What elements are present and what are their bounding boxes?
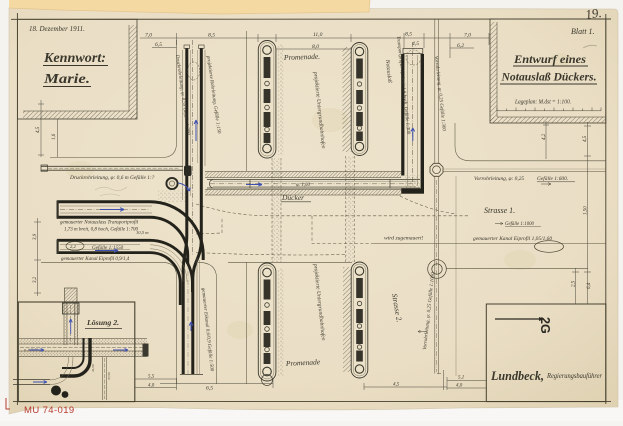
svg-text:2G: 2G bbox=[538, 317, 552, 334]
svg-text:19.: 19. bbox=[584, 5, 602, 22]
svg-text:1,6: 1,6 bbox=[52, 133, 57, 140]
svg-text:3,9: 3,9 bbox=[33, 233, 38, 240]
svg-text:Vorrohrleitung, φ: 0,25: Vorrohrleitung, φ: 0,25 bbox=[474, 176, 524, 182]
svg-text:2,5: 2,5 bbox=[572, 280, 577, 287]
svg-text:18. Dezember 1911.: 18. Dezember 1911. bbox=[29, 25, 85, 33]
svg-text:8,0: 8,0 bbox=[312, 44, 319, 50]
svg-text:Promenade: Promenade bbox=[285, 357, 321, 368]
svg-text:4,5: 4,5 bbox=[412, 41, 419, 47]
svg-text:Gefälle 1:1000: Gefälle 1:1000 bbox=[505, 222, 535, 227]
svg-text:Gefälle 1:1550: Gefälle 1:1550 bbox=[92, 244, 124, 251]
svg-text:Marie.: Marie. bbox=[43, 72, 90, 87]
svg-text:MU 74-019: MU 74-019 bbox=[24, 405, 75, 416]
svg-text:4,2: 4,2 bbox=[542, 133, 547, 140]
svg-text:7,0: 7,0 bbox=[145, 33, 152, 39]
svg-text:1,73 m breit, 0,8 hoch, Gefäll: 1,73 m breit, 0,8 hoch, Gefälle 1:700 bbox=[64, 228, 138, 233]
svg-text:6,4: 6,4 bbox=[587, 282, 592, 289]
svg-text:5,1: 5,1 bbox=[458, 376, 464, 381]
svg-text:φ: 1,00: φ: 1,00 bbox=[296, 183, 310, 188]
svg-text:Lösung 2.: Lösung 2. bbox=[86, 318, 119, 327]
svg-text:Regierungsbauführer: Regierungsbauführer bbox=[546, 372, 602, 380]
svg-text:4,5: 4,5 bbox=[583, 135, 588, 142]
svg-text:8,5: 8,5 bbox=[405, 32, 412, 38]
svg-text:Strasse 1.: Strasse 1. bbox=[484, 206, 515, 215]
svg-text:Druckrohrleitung, φ: 0,6 m Gef: Druckrohrleitung, φ: 0,6 m Gefälle 1:? bbox=[69, 174, 155, 181]
svg-text:gemauerter Kanal Eiprofil 1,05: gemauerter Kanal Eiprofil 1,05/1,60 bbox=[473, 235, 552, 242]
svg-text:5,5: 5,5 bbox=[148, 375, 155, 380]
svg-text:4,5: 4,5 bbox=[36, 126, 41, 133]
svg-text:6,5: 6,5 bbox=[206, 386, 213, 392]
svg-text:11,0: 11,0 bbox=[313, 32, 323, 38]
svg-text:Kennwort:: Kennwort: bbox=[43, 51, 106, 66]
svg-text:Entwurf eines: Entwurf eines bbox=[513, 54, 587, 66]
svg-text:gemauerter Notauslass Transpor: gemauerter Notauslass Transportprofil bbox=[60, 221, 139, 226]
svg-text:3,2: 3,2 bbox=[33, 276, 38, 283]
svg-text:4,0: 4,0 bbox=[148, 383, 155, 388]
svg-text:7,0: 7,0 bbox=[464, 33, 471, 39]
svg-text:Notauslaß Dückers.: Notauslaß Dückers. bbox=[500, 72, 596, 84]
svg-text:4,5: 4,5 bbox=[393, 383, 400, 388]
svg-text:Lundbeck,: Lundbeck, bbox=[490, 369, 544, 383]
svg-text:gemauerter Kanal Eiprofil 0,9/: gemauerter Kanal Eiprofil 0,9/1,4 bbox=[61, 257, 130, 262]
svg-text:wird zugemauert!: wird zugemauert! bbox=[384, 236, 424, 242]
svg-text:Dücker: Dücker bbox=[281, 193, 304, 202]
svg-text:1,50: 1,50 bbox=[584, 206, 589, 215]
svg-text:Gefälle 1:600.: Gefälle 1:600. bbox=[537, 175, 568, 182]
svg-text:6,5: 6,5 bbox=[155, 42, 162, 48]
svg-text:Promenade.: Promenade. bbox=[283, 52, 321, 62]
svg-text:Lageplan: M.dst = 1:100.: Lageplan: M.dst = 1:100. bbox=[514, 99, 571, 106]
svg-text:6,2: 6,2 bbox=[457, 43, 464, 49]
svg-text:Blatt 1.: Blatt 1. bbox=[571, 27, 595, 36]
svg-text:8,5: 8,5 bbox=[208, 33, 215, 39]
svg-text:4,0: 4,0 bbox=[456, 384, 463, 389]
